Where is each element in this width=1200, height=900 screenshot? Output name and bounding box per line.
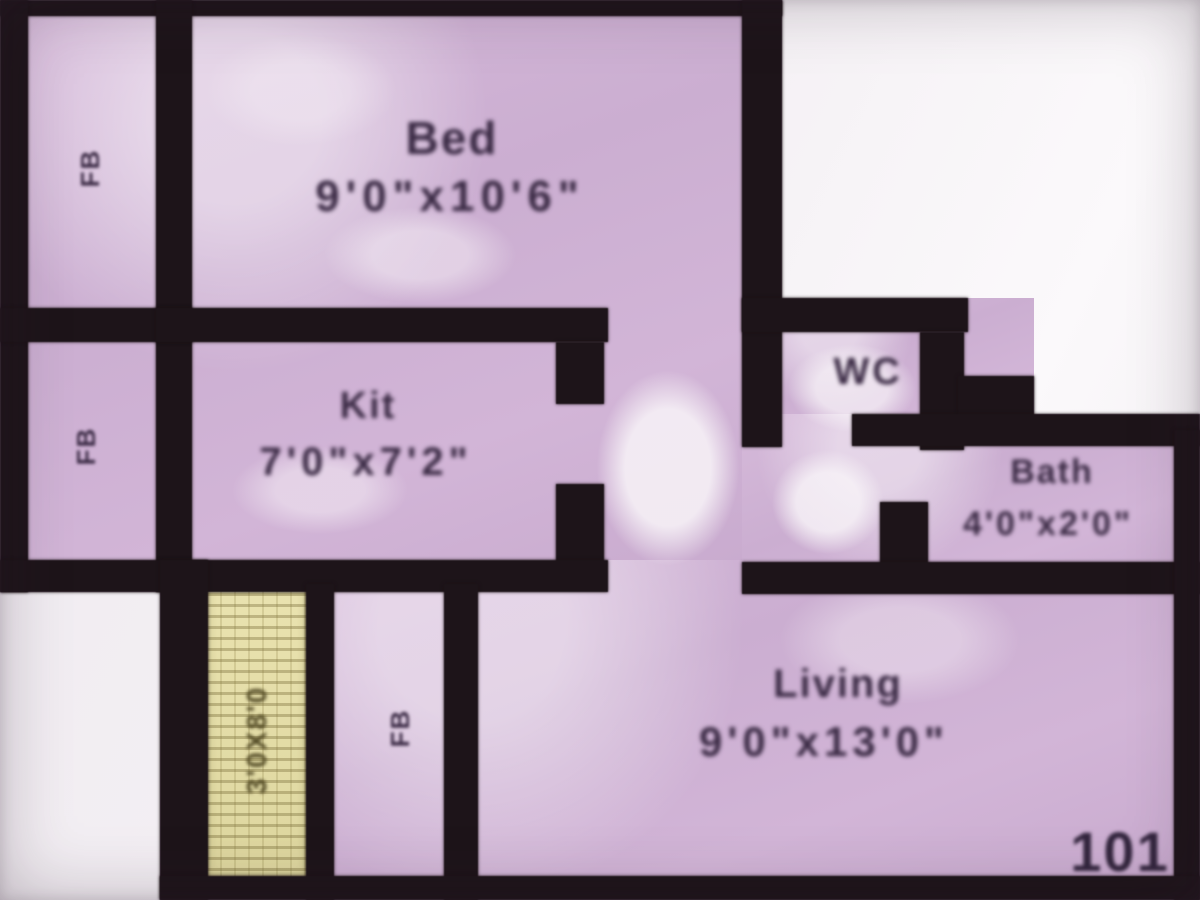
wc-label: WC <box>833 353 902 391</box>
wall-flowerbed-divider <box>156 0 192 592</box>
wall-left-outer <box>0 0 28 592</box>
wall-terrace-left <box>160 560 208 900</box>
wall-bed-bottom <box>156 308 608 342</box>
living-room-dimension: 9'0"x13'0" <box>699 721 949 763</box>
wall-living-top <box>742 562 1200 594</box>
terrace-strip: 3'0X8'0 <box>206 582 308 878</box>
wall-bottom <box>160 876 1200 900</box>
wall-living-left <box>444 584 478 900</box>
wall-wc-bath-step <box>958 376 1034 418</box>
wall-terrace-right <box>306 584 334 900</box>
wall-right-outer <box>1174 430 1200 900</box>
bed-room-dimension: 9'0"x10'6" <box>315 175 584 219</box>
living-room-label: Living <box>773 664 903 704</box>
flower-bed-label-1: FB <box>77 149 103 188</box>
kitchen-label: Kit <box>340 387 397 425</box>
floor-plan: 3'0X8'0 Bed 9'0"x10'6" Kit 7'0"x7'2" WC … <box>0 0 1200 900</box>
wall-wc-top <box>742 298 968 332</box>
terrace-dimension: 3'0X8'0 <box>243 686 271 794</box>
flower-bed-label-2: FB <box>73 427 99 466</box>
bed-kitchen-zone <box>0 0 782 592</box>
wall-bed-right <box>742 0 782 447</box>
flower-bed-label-3: FB <box>387 709 413 748</box>
unit-number: 101 <box>1070 824 1169 880</box>
bath-dimension: 4'0"x2'0" <box>963 507 1133 541</box>
bath-label: Bath <box>1010 455 1094 489</box>
wall-top <box>0 0 782 16</box>
wall-kitchen-bottom <box>0 560 608 592</box>
wall-bath-top <box>852 414 1200 446</box>
bed-room-label: Bed <box>406 115 499 161</box>
kitchen-dimension: 7'0"x7'2" <box>259 442 472 482</box>
wall-kitchen-right-upper <box>556 342 604 404</box>
